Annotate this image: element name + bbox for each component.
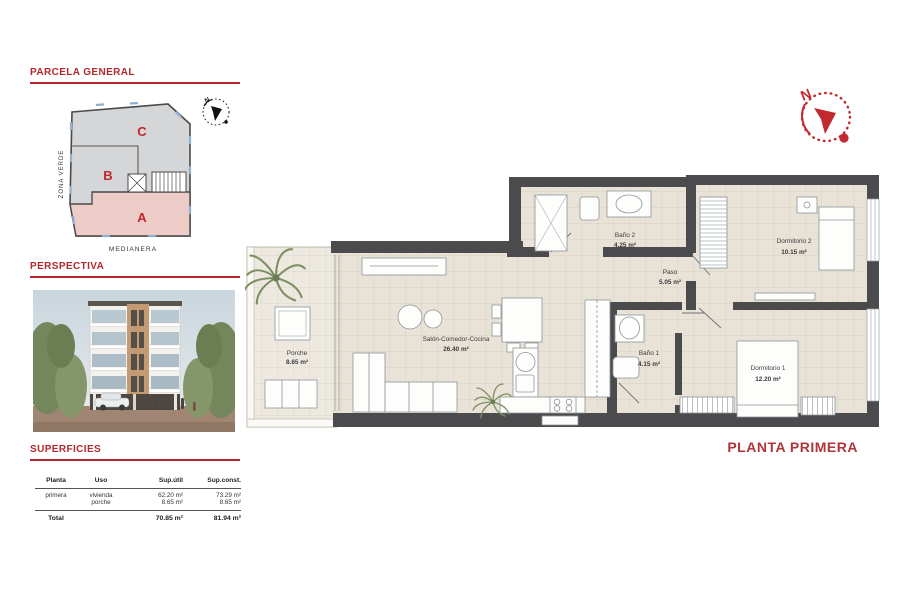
room-area-dormitorio1: 12.20 m²: [755, 376, 781, 383]
table-header-row: Planta Uso Sup.útil Sup.const.: [35, 477, 241, 487]
cell-util: 8.65 m²: [125, 499, 183, 506]
table-row: primera vivienda 62.20 m² 73.29 m²: [35, 492, 241, 499]
col-header-uso: Uso: [77, 477, 125, 484]
superficies-table: Planta Uso Sup.útil Sup.const. primera v…: [35, 477, 241, 522]
floor-plan: Porche 8.65 m² Salón-Comedor-Cocina 26.4…: [245, 175, 880, 443]
room-area-paso: 5.05 m²: [659, 279, 681, 286]
superficies-title: SUPERFICIES: [30, 444, 240, 461]
ground-shadow: [33, 422, 235, 432]
north-compass-icon: N: [795, 84, 859, 152]
parcela-general-title: PARCELA GENERAL: [30, 67, 240, 84]
total-label: Total: [35, 515, 77, 522]
room-area-porche: 8.65 m²: [286, 359, 308, 366]
room-area-bano2: 4.25 m²: [614, 242, 636, 249]
plan-sheet: PARCELA GENERAL: [0, 0, 900, 600]
parcel-north-compass-icon: N: [203, 96, 229, 125]
parcel-zone-a-label: A: [137, 210, 147, 225]
compass-north-letter: N: [798, 85, 813, 104]
room-label-salon: Salón-Comedor-Cocina: [423, 336, 490, 343]
cell-uso: vivienda: [77, 492, 125, 499]
room-area-salon: 26.40 m²: [443, 346, 469, 353]
room-label-porche: Porche: [287, 350, 308, 357]
medianera-label: MEDIANERA: [109, 246, 157, 253]
room-label-paso: Paso: [663, 269, 678, 276]
parcel-zone-b-label: B: [103, 168, 112, 183]
room-label-dormitorio2: Dormitorio 2: [777, 238, 812, 245]
cell-uso: porche: [77, 499, 125, 506]
room-label-bano1: Baño 1: [639, 350, 660, 357]
col-header-sup-util: Sup.útil: [125, 477, 183, 484]
cell-const: 8.65 m²: [183, 499, 241, 506]
col-header-planta: Planta: [35, 477, 77, 484]
zona-verde-label: ZONA VERDE: [59, 150, 65, 199]
room-area-bano1: 4.15 m²: [638, 361, 660, 368]
perspectiva-title: PERSPECTIVA: [30, 261, 240, 278]
cell-planta: primera: [35, 492, 77, 499]
parcel-zone-c-label: C: [137, 124, 147, 139]
cell-util: 62.20 m²: [125, 492, 183, 499]
room-label-bano2: Baño 2: [615, 232, 636, 239]
parcel-diagram: C B A ZONA VERDE MEDIANERA N: [30, 88, 245, 260]
col-header-sup-const: Sup.const.: [183, 477, 241, 484]
table-rule: [35, 510, 241, 511]
cell-const: 73.29 m²: [183, 492, 241, 499]
elevator-icon: [128, 174, 146, 192]
total-const: 81.94 m²: [183, 515, 241, 522]
planta-primera-title: PLANTA PRIMERA: [600, 439, 858, 455]
table-rule: [35, 488, 241, 489]
room-area-dormitorio2: 10.15 m²: [781, 249, 807, 256]
building-render: [33, 290, 235, 432]
room-label-dormitorio1: Dormitorio 1: [751, 365, 786, 372]
table-total-row: Total 70.85 m² 81.94 m²: [35, 515, 241, 522]
table-row: porche 8.65 m² 8.65 m²: [35, 499, 241, 506]
stairs-icon: [152, 172, 186, 192]
total-util: 70.85 m²: [125, 515, 183, 522]
